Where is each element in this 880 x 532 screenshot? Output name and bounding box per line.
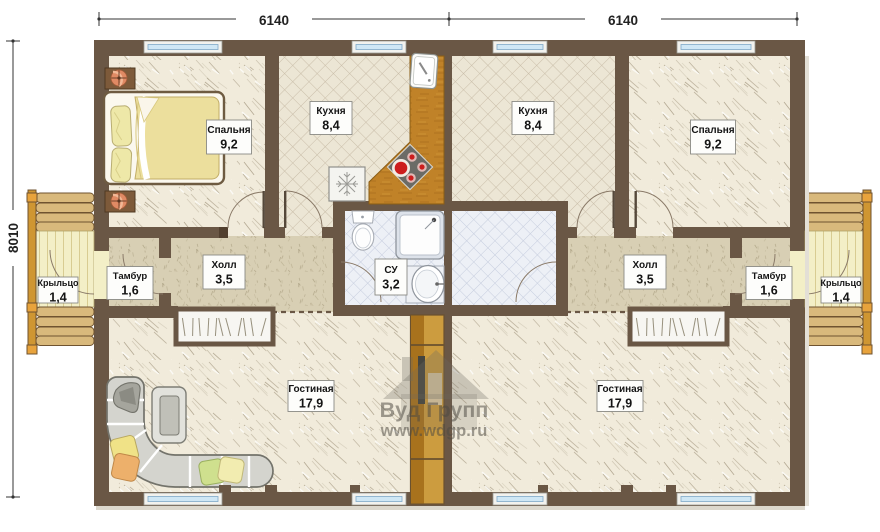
svg-text:Крыльцо: Крыльцо <box>38 278 79 288</box>
svg-text:Тамбур: Тамбур <box>752 271 787 282</box>
svg-text:Спальня: Спальня <box>207 125 250 136</box>
svg-text:17,9: 17,9 <box>299 397 323 411</box>
svg-text:3,5: 3,5 <box>215 273 232 287</box>
svg-text:6140: 6140 <box>608 13 638 28</box>
svg-text:9,2: 9,2 <box>220 138 237 152</box>
svg-text:1,6: 1,6 <box>121 284 138 298</box>
svg-text:8010: 8010 <box>6 223 21 253</box>
svg-text:Гостиная: Гостиная <box>288 384 333 395</box>
svg-text:Холл: Холл <box>211 260 236 271</box>
svg-text:3,5: 3,5 <box>636 273 653 287</box>
svg-text:www.wdgp.ru: www.wdgp.ru <box>380 422 488 440</box>
svg-text:6140: 6140 <box>259 13 289 28</box>
svg-text:Спальня: Спальня <box>691 125 734 136</box>
svg-text:Гостиная: Гостиная <box>597 384 642 395</box>
svg-text:1,4: 1,4 <box>832 291 849 305</box>
svg-text:3,2: 3,2 <box>382 278 399 292</box>
svg-text:1,6: 1,6 <box>760 284 777 298</box>
svg-text:Крыльцо: Крыльцо <box>821 278 862 288</box>
svg-text:Вуд Групп: Вуд Групп <box>380 398 489 422</box>
svg-text:17,9: 17,9 <box>608 397 632 411</box>
svg-text:1,4: 1,4 <box>49 291 66 305</box>
svg-text:Тамбур: Тамбур <box>113 271 148 282</box>
svg-text:Холл: Холл <box>632 260 657 271</box>
svg-text:8,4: 8,4 <box>524 119 541 133</box>
svg-text:СУ: СУ <box>384 265 398 276</box>
svg-text:9,2: 9,2 <box>704 138 721 152</box>
svg-text:8,4: 8,4 <box>322 119 339 133</box>
svg-text:Кухня: Кухня <box>316 106 345 117</box>
svg-text:Кухня: Кухня <box>518 106 547 117</box>
